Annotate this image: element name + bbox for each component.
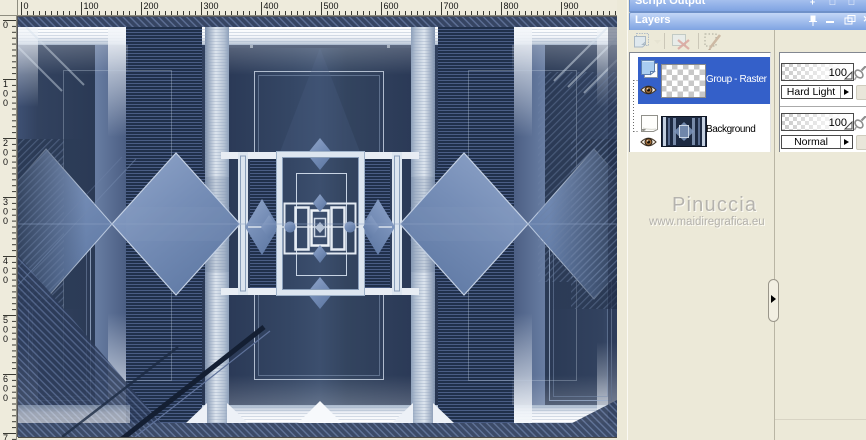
svg-text:5: 5 (3, 315, 8, 325)
svg-text:900: 900 (564, 1, 579, 11)
svg-text:0: 0 (3, 148, 8, 158)
svg-text:300: 300 (204, 1, 219, 11)
svg-text:0: 0 (3, 393, 8, 403)
svg-text:7: 7 (3, 433, 8, 440)
svg-text:500: 500 (324, 1, 339, 11)
svg-text:6: 6 (3, 374, 8, 384)
svg-text:1: 1 (3, 79, 8, 89)
svg-text:800: 800 (504, 1, 519, 11)
svg-text:100: 100 (829, 67, 847, 79)
svg-text:100: 100 (84, 1, 99, 11)
svg-text:4: 4 (3, 256, 8, 266)
svg-text:700: 700 (444, 1, 459, 11)
svg-text:0: 0 (3, 334, 8, 344)
svg-text:2: 2 (3, 138, 8, 148)
svg-text:400: 400 (264, 1, 279, 11)
svg-text:0: 0 (3, 216, 8, 226)
svg-text:0: 0 (3, 157, 8, 167)
svg-text:0: 0 (24, 1, 29, 11)
svg-text:0: 0 (3, 207, 8, 217)
svg-text:0: 0 (3, 275, 8, 285)
svg-text:0: 0 (3, 20, 8, 30)
svg-text:0: 0 (3, 384, 8, 394)
svg-text:600: 600 (384, 1, 399, 11)
svg-text:200: 200 (144, 1, 159, 11)
svg-text:0: 0 (3, 89, 8, 99)
svg-text:0: 0 (3, 266, 8, 276)
svg-text:3: 3 (3, 197, 8, 207)
svg-text:0: 0 (3, 325, 8, 335)
svg-text:100: 100 (829, 117, 847, 129)
svg-text:0: 0 (3, 98, 8, 108)
